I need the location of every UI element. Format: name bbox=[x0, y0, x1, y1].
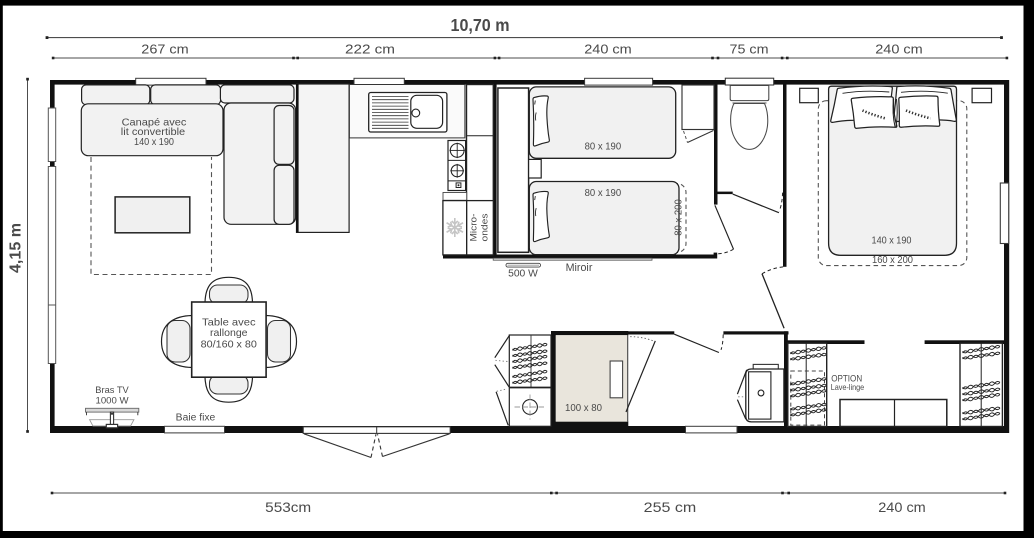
svg-text:240 cm: 240 cm bbox=[584, 42, 632, 56]
svg-text:rallonge: rallonge bbox=[210, 328, 248, 339]
svg-text:80/160 x 80: 80/160 x 80 bbox=[201, 340, 257, 351]
svg-text:240 cm: 240 cm bbox=[875, 42, 923, 56]
svg-text:80 x 190: 80 x 190 bbox=[585, 141, 622, 152]
svg-text:10,70 m: 10,70 m bbox=[451, 15, 510, 35]
svg-text:Miroir: Miroir bbox=[566, 262, 593, 274]
svg-text:140 x 190: 140 x 190 bbox=[134, 137, 174, 148]
svg-text:Baie fixe: Baie fixe bbox=[176, 412, 216, 423]
svg-text:160 x 200: 160 x 200 bbox=[872, 255, 913, 266]
svg-text:1000 W: 1000 W bbox=[96, 395, 129, 406]
svg-text:553cm: 553cm bbox=[265, 500, 311, 515]
svg-text:Lave-linge: Lave-linge bbox=[831, 382, 865, 392]
svg-text:Table avec: Table avec bbox=[202, 317, 256, 328]
svg-text:222 cm: 222 cm bbox=[345, 42, 395, 56]
svg-text:500 W: 500 W bbox=[508, 269, 538, 280]
svg-text:140 x 190: 140 x 190 bbox=[872, 236, 912, 247]
svg-text:267 cm: 267 cm bbox=[141, 42, 188, 56]
svg-text:100 x 80: 100 x 80 bbox=[565, 403, 602, 414]
svg-text:80 x 200: 80 x 200 bbox=[674, 199, 685, 236]
svg-text:255 cm: 255 cm bbox=[644, 500, 697, 515]
svg-text:Micro-: Micro- bbox=[469, 214, 480, 242]
svg-text:75 cm: 75 cm bbox=[730, 42, 769, 56]
svg-text:80 x 190: 80 x 190 bbox=[585, 188, 622, 199]
svg-text:240 cm: 240 cm bbox=[878, 500, 926, 515]
svg-text:ondes: ondes bbox=[480, 213, 491, 241]
svg-text:Bras TV: Bras TV bbox=[95, 384, 129, 395]
svg-text:4,15 m: 4,15 m bbox=[8, 223, 25, 273]
